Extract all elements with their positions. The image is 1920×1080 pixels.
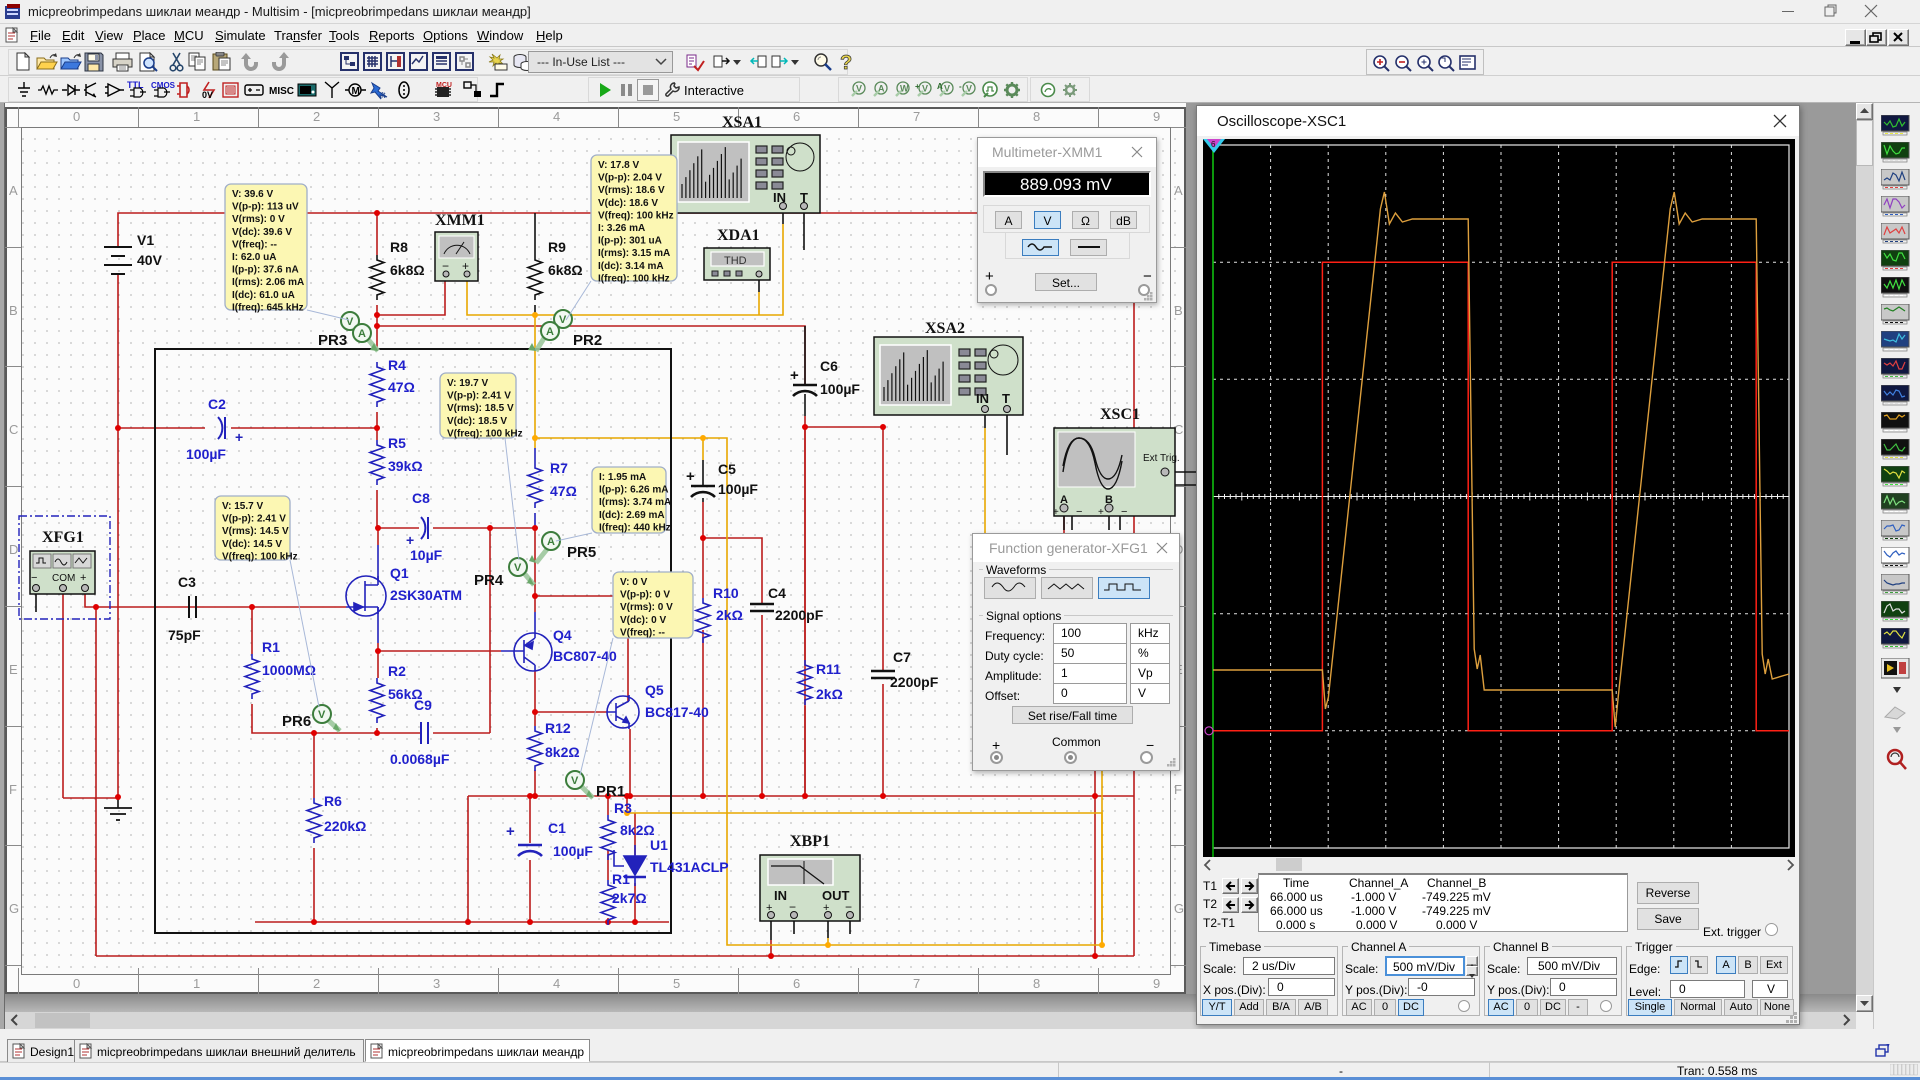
svg-text:R9: R9: [548, 239, 566, 255]
svg-text:Q1: Q1: [390, 565, 409, 581]
svg-text:PR6: PR6: [282, 713, 311, 730]
svg-text:R6: R6: [324, 793, 342, 809]
svg-text:R10: R10: [713, 585, 739, 601]
svg-text:V(freq): --: V(freq): --: [232, 239, 277, 250]
svg-text:V(freq): 100 kHz: V(freq): 100 kHz: [447, 428, 523, 439]
svg-text:75pF: 75pF: [168, 627, 201, 643]
svg-text:R5: R5: [388, 435, 406, 451]
svg-text:V(dc): 14.5 V: V(dc): 14.5 V: [222, 539, 282, 550]
svg-text:Ext Trig.: Ext Trig.: [1143, 453, 1180, 464]
svg-text:Q5: Q5: [645, 682, 664, 698]
svg-text:COM: COM: [52, 573, 75, 584]
svg-text:V: 19.7 V: V: 19.7 V: [447, 378, 488, 389]
svg-text:XMM1: XMM1: [435, 212, 485, 229]
svg-text:C4: C4: [768, 585, 786, 601]
svg-text:I(freq): 440 kHz: I(freq): 440 kHz: [599, 522, 671, 533]
svg-text:I(dc): 2.69 mA: I(dc): 2.69 mA: [599, 510, 665, 521]
svg-text:6k8Ω: 6k8Ω: [548, 262, 583, 278]
svg-text:V(dc): 18.6 V: V(dc): 18.6 V: [598, 198, 658, 209]
svg-text:R1: R1: [262, 639, 280, 655]
svg-text:47Ω: 47Ω: [388, 379, 415, 395]
svg-text:100µF: 100µF: [553, 843, 593, 859]
svg-text:XSA2: XSA2: [925, 320, 965, 337]
svg-text:2200pF: 2200pF: [890, 674, 939, 690]
svg-text:I(dc): 61.0 uA: I(dc): 61.0 uA: [232, 290, 295, 301]
svg-text:V1: V1: [137, 232, 154, 248]
svg-text:I(p-p): 6.26 mA: I(p-p): 6.26 mA: [599, 485, 668, 496]
svg-text:I(freq): 100 kHz: I(freq): 100 kHz: [598, 273, 670, 284]
svg-text:I(p-p): 37.6 nA: I(p-p): 37.6 nA: [232, 265, 299, 276]
svg-text:V: 0 V: V: 0 V: [620, 577, 648, 588]
svg-text:2SK30ATM: 2SK30ATM: [390, 587, 462, 603]
svg-text:8k2Ω: 8k2Ω: [545, 744, 580, 760]
svg-text:2200pF: 2200pF: [775, 607, 824, 623]
svg-text:2kΩ: 2kΩ: [816, 686, 843, 702]
svg-text:R1: R1: [612, 871, 630, 887]
svg-text:IN: IN: [774, 888, 787, 903]
svg-text:220kΩ: 220kΩ: [324, 818, 366, 834]
svg-text:I(rms): 3.74 mA: I(rms): 3.74 mA: [599, 497, 671, 508]
svg-text:V(freq): 100 kHz: V(freq): 100 kHz: [222, 551, 298, 562]
svg-text:8k2Ω: 8k2Ω: [620, 822, 655, 838]
svg-text:U1: U1: [650, 837, 668, 853]
svg-text:I(rms): 3.15 mA: I(rms): 3.15 mA: [598, 248, 670, 259]
svg-text:C5: C5: [718, 461, 736, 477]
svg-text:40V: 40V: [137, 252, 163, 268]
svg-text:100µF: 100µF: [820, 381, 860, 397]
svg-text:+: +: [235, 429, 243, 445]
svg-text:−: −: [31, 572, 37, 584]
svg-text:XFG1: XFG1: [42, 529, 84, 546]
svg-text:TL431ACLP: TL431ACLP: [650, 859, 729, 875]
svg-text:C8: C8: [412, 490, 430, 506]
svg-text:V(dc): 39.6 V: V(dc): 39.6 V: [232, 227, 292, 238]
svg-text:I(freq): 645 kHz: I(freq): 645 kHz: [232, 302, 304, 313]
svg-text:V: V: [318, 709, 326, 721]
svg-text:Q4: Q4: [553, 627, 572, 643]
svg-text:XBP1: XBP1: [790, 833, 830, 850]
svg-text:+: +: [686, 468, 695, 485]
svg-text:−: −: [1076, 506, 1082, 518]
svg-text:100µF: 100µF: [186, 446, 226, 462]
svg-text:100µF: 100µF: [718, 481, 758, 497]
svg-text:PR4: PR4: [474, 572, 504, 589]
svg-text:I: 1.95 mA: I: 1.95 mA: [599, 472, 646, 483]
svg-text:XSA1: XSA1: [722, 114, 762, 131]
svg-text:10µF: 10µF: [410, 547, 443, 563]
svg-text:+: +: [506, 823, 515, 840]
svg-text:C1: C1: [548, 820, 566, 836]
svg-text:47Ω: 47Ω: [550, 483, 577, 499]
svg-text:V(dc): 0 V: V(dc): 0 V: [620, 615, 666, 626]
svg-text:V: V: [559, 314, 567, 326]
svg-text:PR5: PR5: [567, 544, 596, 561]
svg-text:1000MΩ: 1000MΩ: [262, 662, 316, 678]
svg-text:V: 17.8 V: V: 17.8 V: [598, 160, 639, 171]
svg-text:R8: R8: [390, 239, 408, 255]
svg-text:V(rms): 18.6 V: V(rms): 18.6 V: [598, 185, 665, 196]
svg-text:I(p-p): 301 uA: I(p-p): 301 uA: [598, 236, 662, 247]
svg-text:C2: C2: [208, 396, 226, 412]
svg-text:+: +: [406, 532, 414, 548]
svg-text:BC817-40: BC817-40: [645, 704, 709, 720]
svg-text:PR2: PR2: [573, 332, 602, 349]
svg-text:A: A: [358, 328, 366, 340]
svg-text:PR3: PR3: [318, 332, 347, 349]
svg-text:R11: R11: [816, 661, 841, 677]
svg-text:V: V: [514, 562, 522, 574]
svg-text:+: +: [80, 572, 86, 584]
svg-text:I(rms): 2.06 mA: I(rms): 2.06 mA: [232, 277, 304, 288]
svg-text:C7: C7: [893, 649, 911, 665]
svg-text:I: 3.26 mA: I: 3.26 mA: [598, 223, 645, 234]
svg-text:V(p-p): 2.04 V: V(p-p): 2.04 V: [598, 173, 662, 184]
svg-text:V: V: [571, 775, 579, 787]
svg-text:T: T: [1002, 391, 1010, 406]
svg-text:6: 6: [1211, 140, 1216, 149]
svg-text:0.0068µF: 0.0068µF: [390, 751, 450, 767]
svg-text:+: +: [1053, 507, 1059, 518]
svg-text:2k7Ω: 2k7Ω: [612, 890, 647, 906]
svg-text:R7: R7: [550, 460, 568, 476]
svg-text:I(dc): 3.14 mA: I(dc): 3.14 mA: [598, 261, 664, 272]
svg-text:V(p-p): 2.41 V: V(p-p): 2.41 V: [222, 514, 286, 525]
svg-text:V(dc): 18.5 V: V(dc): 18.5 V: [447, 416, 507, 427]
svg-text:V(p-p): 113 uV: V(p-p): 113 uV: [232, 202, 299, 213]
svg-text:IN: IN: [976, 391, 989, 406]
svg-text:A: A: [546, 326, 554, 338]
svg-text:V(freq): 100 kHz: V(freq): 100 kHz: [598, 210, 674, 221]
svg-text:R4: R4: [388, 357, 406, 373]
svg-text:C6: C6: [820, 358, 838, 374]
svg-text:39kΩ: 39kΩ: [388, 458, 423, 474]
svg-text:XDA1: XDA1: [717, 227, 760, 244]
svg-text:C9: C9: [414, 697, 432, 713]
svg-text:+: +: [790, 367, 799, 384]
svg-text:V(freq): --: V(freq): --: [620, 627, 665, 638]
svg-text:R3: R3: [614, 800, 632, 816]
svg-text:V(rms): 0 V: V(rms): 0 V: [620, 602, 673, 613]
svg-text:V: V: [346, 316, 354, 328]
svg-text:I: 62.0 uA: I: 62.0 uA: [232, 252, 276, 263]
svg-text:6k8Ω: 6k8Ω: [390, 262, 425, 278]
svg-text:THD: THD: [724, 255, 747, 267]
svg-text:−: −: [1121, 506, 1127, 518]
svg-text:V: 15.7 V: V: 15.7 V: [222, 501, 263, 512]
svg-text:A: A: [547, 536, 555, 548]
svg-text:2kΩ: 2kΩ: [716, 607, 743, 623]
svg-text:R12: R12: [545, 720, 571, 736]
svg-text:V(p-p): 2.41 V: V(p-p): 2.41 V: [447, 391, 511, 402]
svg-text:C3: C3: [178, 574, 196, 590]
svg-text:V: 39.6 V: V: 39.6 V: [232, 189, 273, 200]
svg-text:V(p-p): 0 V: V(p-p): 0 V: [620, 590, 670, 601]
svg-text:R2: R2: [388, 663, 406, 679]
svg-text:XSC1: XSC1: [1100, 406, 1140, 423]
svg-text:+: +: [1098, 507, 1104, 518]
svg-text:PR1: PR1: [596, 783, 625, 800]
svg-text:V(rms): 18.5 V: V(rms): 18.5 V: [447, 403, 514, 414]
svg-text:V(rms): 14.5 V: V(rms): 14.5 V: [222, 526, 289, 537]
svg-text:V(rms): 0 V: V(rms): 0 V: [232, 214, 285, 225]
